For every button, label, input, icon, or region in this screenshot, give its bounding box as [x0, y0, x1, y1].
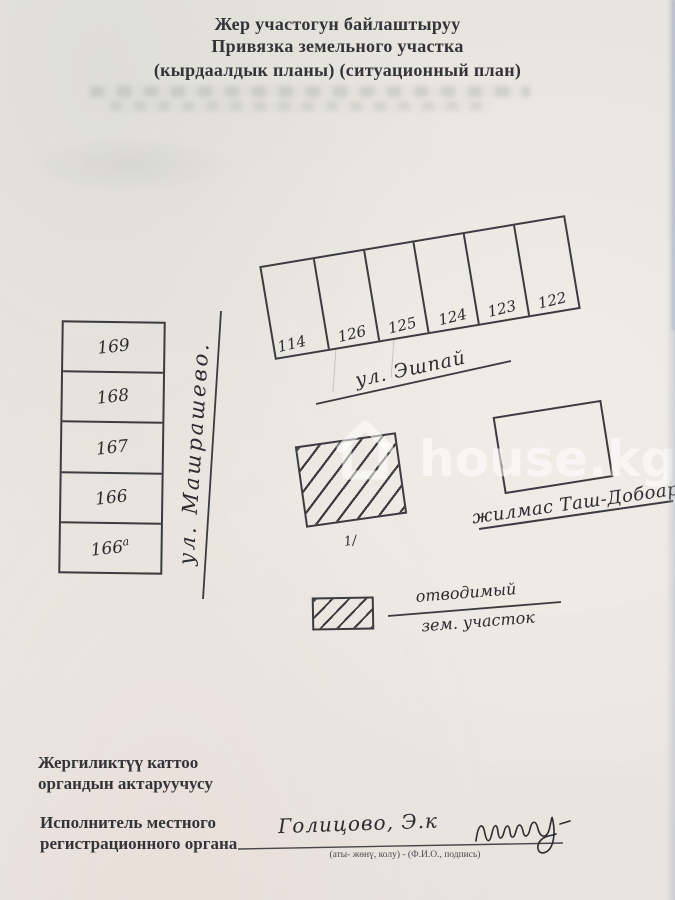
bleed-through-smudge: [90, 86, 530, 97]
plot-number: 169: [96, 335, 130, 358]
plot-number: 123: [486, 297, 519, 323]
signature-line: [238, 843, 563, 849]
title-kyrgyz: Жер участогун байлаштыруу: [0, 13, 675, 35]
registrar-ky-line1: Жергиликтүү каттоо: [38, 752, 213, 773]
bleed-through-smudge: [110, 101, 490, 111]
registrar-label-russian: Исполнитель местного регистрационного ор…: [40, 812, 237, 854]
plot-number: 126: [336, 322, 369, 348]
plot-number: 125: [386, 313, 419, 339]
plot-cell: 167: [62, 423, 163, 475]
plot-number: 124: [436, 305, 469, 331]
plot-number: 167: [95, 436, 129, 459]
plot-cell: 169: [63, 322, 164, 374]
registrar-ky-line2: органдын актаруучусу: [38, 773, 213, 794]
street-label-vertical: ул. Машрашево.: [174, 332, 215, 573]
plots-column-left: 169168167166166а: [58, 320, 166, 574]
page-edge-shadow: [670, 0, 675, 330]
plot-cell: 166а: [60, 523, 161, 573]
plot-number: 114: [276, 332, 309, 358]
plot-number: 166: [94, 486, 128, 509]
signature-caption: (аты- жөнү, колу) - (Ф.И.О., подпись): [255, 850, 555, 860]
bleed-through-smudge: [20, 135, 240, 195]
plot-number: 166а: [90, 535, 131, 561]
plot-outline-right: [493, 400, 614, 494]
title-russian: Привязка земельного участка: [0, 35, 675, 57]
plot-cell: 166: [61, 473, 162, 525]
registrar-ru-line1: Исполнитель местного: [40, 812, 237, 833]
legend-text-line2: зем. участок: [407, 607, 548, 637]
plot-number: 168: [95, 386, 129, 409]
district-label: жилмас Таш-Добоар: [468, 478, 675, 529]
plot-mark: 1/: [343, 533, 358, 550]
legend-hatch-swatch: [312, 596, 375, 630]
registrar-label-kyrgyz: Жергиликтүү каттоо органдын актаруучусу: [38, 752, 213, 794]
signature-dash: [560, 821, 570, 824]
document-title-block: Жер участогун байлаштыруу Привязка земел…: [0, 0, 675, 81]
plot-number-suffix: а: [122, 535, 130, 549]
plots-row-top: 114126125124123122: [259, 215, 580, 360]
allocated-plot-hatched: [295, 432, 407, 527]
plot-cell: 168: [62, 373, 163, 425]
title-subtitle: (кырдаалдык планы) (ситуационный план): [0, 59, 675, 81]
street-label-horizontal: ул. Эшпай: [328, 341, 494, 397]
legend-text-line1: отводимый: [404, 578, 527, 607]
plot-number: 122: [536, 288, 569, 314]
registrar-ru-line2: регистрационного органа: [40, 833, 237, 854]
signature-name: Голицово, Э.к: [278, 806, 519, 838]
